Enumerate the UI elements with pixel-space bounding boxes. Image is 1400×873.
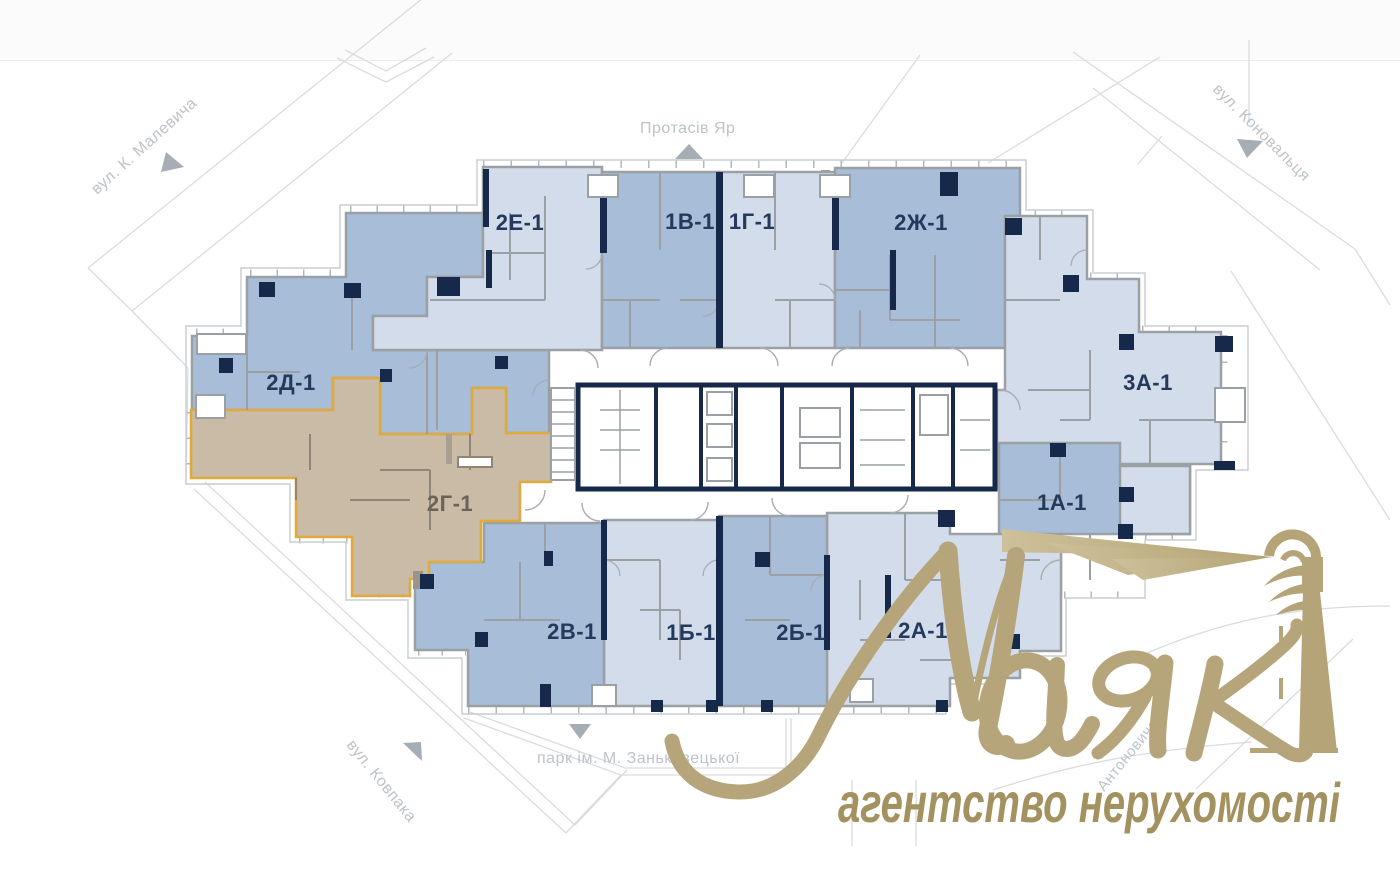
svg-text:парк ім. М. Заньковецької: парк ім. М. Заньковецької	[537, 750, 740, 767]
svg-text:2Г-1: 2Г-1	[427, 491, 473, 516]
svg-text:1Б-1: 1Б-1	[666, 620, 716, 645]
svg-text:2А-1: 2А-1	[898, 618, 948, 643]
svg-text:Протасів Яр: Протасів Яр	[640, 120, 735, 137]
svg-text:агентство нерухомості: агентство нерухомості	[838, 771, 1341, 834]
svg-text:3А-1: 3А-1	[1123, 370, 1173, 395]
svg-text:2Д-1: 2Д-1	[266, 370, 315, 395]
svg-text:1А-1: 1А-1	[1037, 490, 1087, 515]
svg-text:2Ж-1: 2Ж-1	[894, 210, 948, 235]
svg-text:2Е-1: 2Е-1	[496, 210, 544, 235]
svg-text:2В-1: 2В-1	[547, 619, 597, 644]
svg-text:2Б-1: 2Б-1	[776, 620, 826, 645]
svg-text:1В-1: 1В-1	[665, 209, 715, 234]
svg-text:1Г-1: 1Г-1	[729, 209, 775, 234]
